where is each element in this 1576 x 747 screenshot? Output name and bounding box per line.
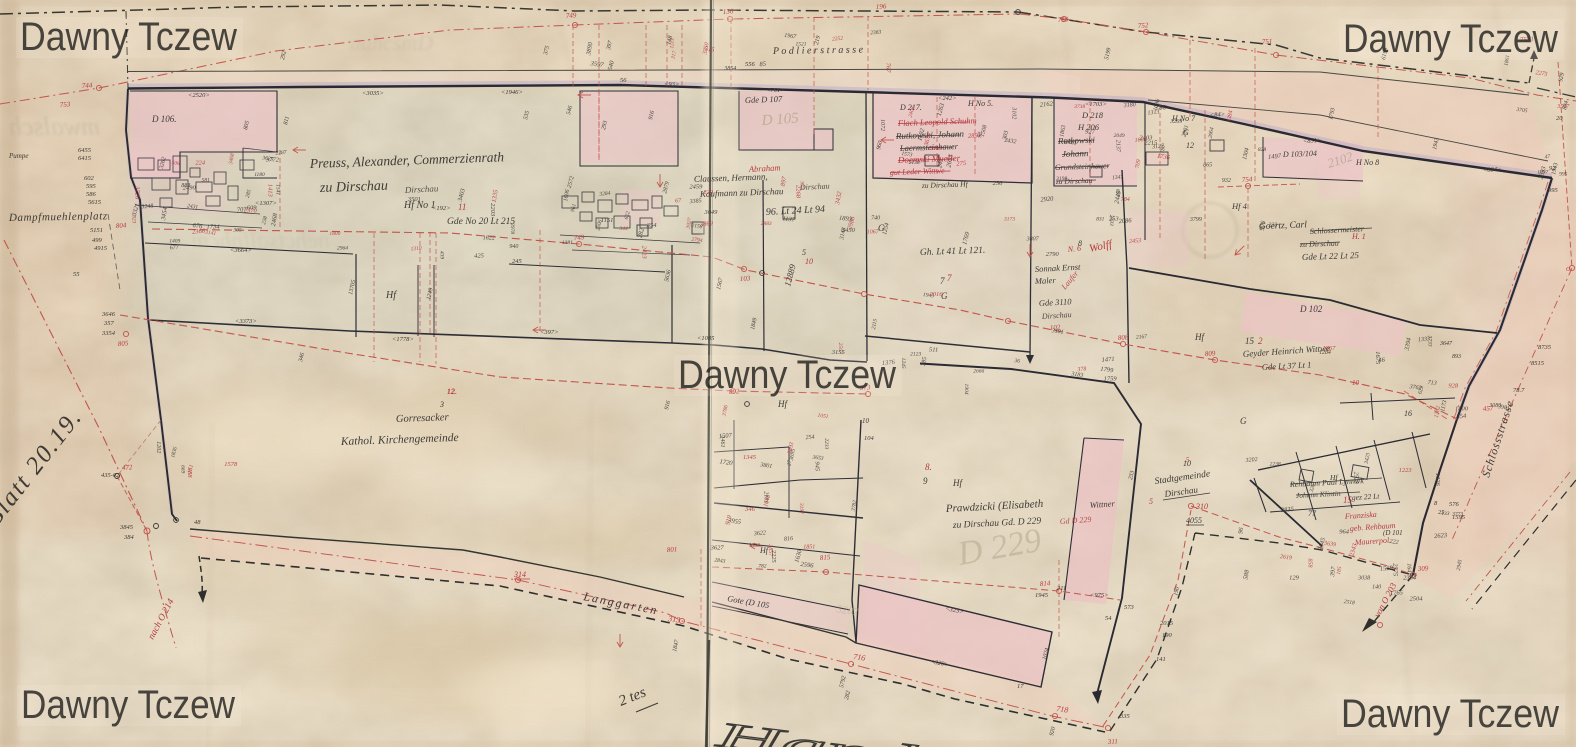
svg-text:749: 749 bbox=[574, 233, 586, 242]
svg-text:133: 133 bbox=[1441, 511, 1450, 517]
svg-text:740: 740 bbox=[871, 215, 880, 222]
svg-text:10: 10 bbox=[1352, 379, 1360, 387]
svg-text:2233: 2233 bbox=[823, 438, 829, 449]
svg-text:784: 784 bbox=[1121, 196, 1130, 203]
svg-text:Hf: Hf bbox=[1194, 332, 1205, 342]
svg-text:211: 211 bbox=[1057, 585, 1066, 592]
svg-text:3647: 3647 bbox=[1439, 340, 1453, 347]
svg-text:Dawny Tczew: Dawny Tczew bbox=[678, 353, 896, 397]
svg-text:1851: 1851 bbox=[803, 545, 815, 551]
svg-text:2287: 2287 bbox=[275, 150, 287, 157]
svg-text:Dawny Tczew: Dawny Tczew bbox=[21, 683, 235, 727]
svg-text:zu Dirschau: zu Dirschau bbox=[319, 179, 389, 196]
svg-text:439: 439 bbox=[439, 251, 446, 260]
svg-text:Hf: Hf bbox=[385, 290, 397, 301]
svg-text:Hf: Hf bbox=[952, 478, 963, 488]
svg-text:1409: 1409 bbox=[169, 238, 180, 245]
svg-text:D 105: D 105 bbox=[760, 110, 800, 129]
svg-text:2162: 2162 bbox=[1040, 101, 1054, 109]
svg-text:<761>: <761> bbox=[766, 87, 785, 94]
svg-text:129: 129 bbox=[1289, 575, 1300, 582]
svg-text:141: 141 bbox=[1156, 656, 1166, 663]
svg-text:9: 9 bbox=[923, 476, 928, 486]
svg-text:1765: 1765 bbox=[1390, 589, 1404, 597]
svg-text:749: 749 bbox=[566, 11, 578, 20]
svg-text:36: 36 bbox=[1013, 358, 1021, 365]
svg-text:435-02: 435-02 bbox=[101, 472, 120, 479]
svg-text:92: 92 bbox=[977, 131, 984, 138]
svg-text:945: 945 bbox=[814, 461, 821, 472]
svg-text:Gde D 107: Gde D 107 bbox=[745, 94, 783, 105]
svg-text:Dawny Tczew: Dawny Tczew bbox=[20, 15, 237, 59]
svg-text:3799: 3799 bbox=[1189, 217, 1202, 223]
svg-text:1521: 1521 bbox=[796, 41, 807, 47]
svg-text:310: 310 bbox=[1195, 502, 1208, 511]
svg-text:7: 7 bbox=[940, 276, 945, 286]
svg-text:224: 224 bbox=[195, 159, 206, 166]
svg-text:2903: 2903 bbox=[930, 146, 942, 152]
svg-text:3646: 3646 bbox=[101, 311, 116, 318]
svg-text:305: 305 bbox=[232, 228, 242, 234]
svg-text:357: 357 bbox=[103, 320, 115, 327]
svg-text:Abraham: Abraham bbox=[748, 162, 781, 174]
svg-text:2883: 2883 bbox=[761, 221, 772, 227]
svg-text:3038: 3038 bbox=[1357, 576, 1370, 582]
svg-text:602: 602 bbox=[84, 175, 95, 182]
svg-text:816: 816 bbox=[784, 536, 793, 543]
svg-text:804: 804 bbox=[116, 221, 128, 230]
svg-text:309: 309 bbox=[1417, 564, 1430, 573]
svg-text:4055: 4055 bbox=[1186, 516, 1202, 525]
svg-text:1347: 1347 bbox=[1112, 173, 1124, 181]
svg-text:103: 103 bbox=[740, 274, 752, 283]
svg-text:254: 254 bbox=[805, 434, 815, 442]
svg-text:5: 5 bbox=[802, 248, 806, 257]
svg-text:56: 56 bbox=[620, 77, 627, 84]
svg-text:1284: 1284 bbox=[1319, 349, 1331, 356]
svg-text:940: 940 bbox=[509, 243, 518, 250]
svg-text:3773: 3773 bbox=[1451, 512, 1463, 518]
svg-text:1333: 1333 bbox=[1418, 336, 1430, 343]
svg-text:1759: 1759 bbox=[1104, 376, 1118, 383]
svg-text:<1778>: <1778> bbox=[392, 336, 414, 343]
svg-text:Maler: Maler bbox=[1034, 275, 1057, 286]
svg-text:104: 104 bbox=[864, 435, 875, 442]
svg-text:196: 196 bbox=[876, 2, 888, 11]
svg-text:3269: 3269 bbox=[1169, 119, 1182, 125]
svg-text:3857: 3857 bbox=[767, 543, 773, 557]
svg-text:3127: 3127 bbox=[1151, 143, 1165, 150]
svg-text:17: 17 bbox=[1017, 683, 1024, 690]
svg-text:Dawny Tczew: Dawny Tczew bbox=[1343, 17, 1558, 61]
svg-text:828: 828 bbox=[1258, 147, 1267, 153]
svg-text:3627: 3627 bbox=[710, 544, 725, 551]
svg-text:5615: 5615 bbox=[88, 199, 102, 206]
svg-text:10: 10 bbox=[805, 257, 813, 266]
svg-text:1413: 1413 bbox=[267, 184, 274, 198]
svg-text:554: 554 bbox=[1456, 413, 1467, 421]
svg-text:751: 751 bbox=[1262, 37, 1273, 46]
svg-text:<884>: <884> bbox=[1483, 166, 1502, 174]
svg-text:3248: 3248 bbox=[140, 202, 154, 210]
svg-text:5: 5 bbox=[1149, 497, 1153, 506]
svg-text:2964: 2964 bbox=[337, 245, 348, 252]
svg-text:(D 101: (D 101 bbox=[1383, 529, 1403, 537]
svg-text:245: 245 bbox=[512, 258, 523, 265]
svg-text:Gorresacker: Gorresacker bbox=[396, 412, 450, 425]
svg-text:1072: 1072 bbox=[879, 119, 885, 131]
svg-text:3198: 3198 bbox=[1055, 176, 1067, 182]
svg-text:1067: 1067 bbox=[867, 230, 880, 236]
svg-text:3622: 3622 bbox=[753, 530, 766, 537]
svg-text:767: 767 bbox=[885, 63, 892, 73]
svg-text:48: 48 bbox=[194, 519, 201, 526]
svg-text:3197: 3197 bbox=[798, 502, 804, 514]
svg-text:2459: 2459 bbox=[689, 184, 703, 191]
svg-text:964: 964 bbox=[1339, 529, 1350, 536]
svg-text:1541: 1541 bbox=[275, 184, 282, 195]
svg-text:256: 256 bbox=[993, 180, 1004, 187]
svg-text:6455: 6455 bbox=[78, 147, 92, 154]
svg-text:<2520>: <2520> bbox=[188, 92, 210, 99]
svg-text:12: 12 bbox=[1186, 141, 1194, 150]
svg-text:1471: 1471 bbox=[1101, 356, 1115, 364]
svg-text:335: 335 bbox=[1119, 713, 1131, 720]
svg-text:1180: 1180 bbox=[254, 172, 265, 178]
svg-text:<3664>: <3664> bbox=[230, 247, 252, 254]
svg-text:2138: 2138 bbox=[909, 160, 920, 166]
svg-text:4915: 4915 bbox=[94, 245, 108, 252]
svg-text:801: 801 bbox=[667, 545, 678, 554]
svg-text:573: 573 bbox=[1124, 604, 1135, 611]
svg-text:229: 229 bbox=[703, 189, 714, 196]
svg-text:11: 11 bbox=[458, 202, 466, 212]
svg-text:2354: 2354 bbox=[1403, 575, 1417, 582]
svg-text:858: 858 bbox=[1307, 559, 1313, 568]
svg-text:3371: 3371 bbox=[668, 36, 674, 48]
svg-text:1904: 1904 bbox=[963, 384, 970, 395]
svg-text:<192>: <192> bbox=[432, 205, 451, 212]
svg-text:1578: 1578 bbox=[224, 461, 238, 468]
svg-text:Gde 3110: Gde 3110 bbox=[1039, 296, 1073, 308]
svg-text:54: 54 bbox=[1105, 615, 1112, 622]
svg-text:595: 595 bbox=[86, 183, 97, 190]
svg-text:2423: 2423 bbox=[640, 246, 647, 260]
svg-text:2383: 2383 bbox=[870, 29, 882, 36]
svg-text:8515: 8515 bbox=[1531, 360, 1545, 367]
svg-text:995: 995 bbox=[1548, 187, 1559, 194]
svg-text:mwalsch: mwalsch bbox=[9, 112, 100, 141]
svg-text:3202: 3202 bbox=[1244, 457, 1257, 464]
svg-text:713: 713 bbox=[1427, 380, 1437, 387]
svg-text:275: 275 bbox=[956, 160, 967, 168]
svg-text:3854: 3854 bbox=[723, 65, 736, 72]
svg-text:506: 506 bbox=[171, 160, 180, 167]
svg-text:Dawny Tczew: Dawny Tczew bbox=[1341, 692, 1559, 736]
svg-text:2203: 2203 bbox=[489, 203, 496, 217]
svg-text:3835: 3835 bbox=[1280, 506, 1295, 514]
svg-text:2252: 2252 bbox=[832, 36, 844, 43]
svg-text:8735: 8735 bbox=[1538, 344, 1552, 351]
svg-text:1675: 1675 bbox=[1374, 351, 1381, 365]
svg-text:314: 314 bbox=[513, 570, 526, 579]
svg-text:576: 576 bbox=[1449, 501, 1460, 508]
svg-text:2167: 2167 bbox=[1136, 334, 1148, 341]
svg-text:750: 750 bbox=[1058, 15, 1070, 24]
svg-text:<851>: <851> bbox=[1303, 137, 1322, 145]
svg-text:511: 511 bbox=[929, 347, 938, 354]
svg-text:55: 55 bbox=[73, 271, 80, 278]
svg-text:2790: 2790 bbox=[1046, 251, 1060, 258]
svg-text:6415: 6415 bbox=[78, 155, 92, 162]
svg-text:1507: 1507 bbox=[719, 432, 733, 440]
svg-text:H No 8: H No 8 bbox=[1355, 158, 1379, 167]
svg-text:927: 927 bbox=[1085, 129, 1096, 136]
svg-text:Gde No 20 Lt 215: Gde No 20 Lt 215 bbox=[447, 217, 515, 227]
svg-text:3501: 3501 bbox=[407, 196, 421, 203]
svg-text:808: 808 bbox=[1118, 333, 1130, 342]
svg-text:253: 253 bbox=[1109, 216, 1120, 223]
svg-text:Dirschau: Dirschau bbox=[404, 183, 439, 195]
svg-text:1381: 1381 bbox=[562, 240, 573, 246]
svg-text:669: 669 bbox=[180, 465, 186, 474]
svg-text:3738: 3738 bbox=[1073, 104, 1085, 110]
svg-text:2268: 2268 bbox=[795, 185, 802, 199]
svg-text:5151: 5151 bbox=[90, 227, 103, 234]
svg-text:2666: 2666 bbox=[973, 368, 984, 374]
svg-text:815: 815 bbox=[820, 553, 832, 562]
svg-text:754: 754 bbox=[1242, 175, 1254, 184]
svg-text:67: 67 bbox=[675, 199, 682, 205]
svg-text:3385: 3385 bbox=[688, 198, 701, 205]
svg-text:995: 995 bbox=[1559, 171, 1568, 177]
svg-text:222: 222 bbox=[1389, 539, 1399, 546]
svg-text:472: 472 bbox=[122, 463, 134, 472]
svg-text:344: 344 bbox=[619, 225, 629, 232]
svg-text:2015: 2015 bbox=[1160, 620, 1174, 627]
svg-text:718: 718 bbox=[1056, 704, 1069, 715]
svg-text:H No 5.: H No 5. bbox=[967, 99, 993, 108]
svg-text:7: 7 bbox=[947, 273, 952, 283]
svg-text:Dampfmuehlenplatz: Dampfmuehlenplatz bbox=[8, 210, 108, 224]
svg-text:<1085: <1085 bbox=[697, 335, 715, 342]
svg-text:384: 384 bbox=[123, 534, 135, 541]
svg-text:<1703>: <1703> bbox=[1085, 101, 1107, 108]
svg-text:2575: 2575 bbox=[1392, 563, 1399, 577]
svg-text:O: O bbox=[1566, 267, 1571, 273]
svg-text:<84>: <84> bbox=[1210, 111, 1226, 119]
svg-text:752: 752 bbox=[1138, 21, 1150, 30]
svg-text:Gde Lt 22 Lt 25: Gde Lt 22 Lt 25 bbox=[1302, 250, 1360, 262]
svg-text:3102: 3102 bbox=[1011, 106, 1017, 119]
svg-text:3807: 3807 bbox=[1026, 237, 1040, 243]
svg-text:P o d l i e r s t r a s s e: P o d l i e r s t r a s s e bbox=[772, 44, 864, 57]
svg-text:556: 556 bbox=[745, 61, 756, 68]
svg-text:223: 223 bbox=[1268, 222, 1277, 228]
svg-text:140: 140 bbox=[1372, 583, 1381, 590]
svg-text:2453: 2453 bbox=[1129, 237, 1142, 245]
svg-text:2238: 2238 bbox=[1270, 462, 1281, 468]
svg-text:16: 16 bbox=[1404, 409, 1412, 418]
svg-text:130: 130 bbox=[723, 7, 735, 16]
svg-text:3354: 3354 bbox=[101, 330, 116, 337]
svg-text:20: 20 bbox=[1556, 115, 1563, 122]
svg-text:3180: 3180 bbox=[1123, 102, 1136, 109]
svg-text:2370: 2370 bbox=[244, 208, 258, 215]
svg-text:677: 677 bbox=[170, 245, 180, 252]
svg-text:77: 77 bbox=[1308, 509, 1317, 518]
svg-text:Hf: Hf bbox=[777, 399, 788, 409]
svg-text:354: 354 bbox=[646, 222, 658, 229]
svg-text:H. 1: H. 1 bbox=[1351, 232, 1366, 241]
svg-text:D 102: D 102 bbox=[1299, 304, 1323, 314]
svg-text:<1307>: <1307> bbox=[255, 200, 277, 207]
svg-text:2623: 2623 bbox=[1434, 532, 1448, 540]
svg-text:D 106.: D 106. bbox=[151, 114, 177, 124]
svg-text:Hf 4: Hf 4 bbox=[1231, 201, 1248, 211]
svg-text:92: 92 bbox=[1549, 165, 1556, 172]
svg-text:2523: 2523 bbox=[1353, 472, 1359, 484]
svg-text:1666: 1666 bbox=[1134, 137, 1146, 144]
svg-text:Wittner: Wittner bbox=[1089, 498, 1115, 510]
svg-text:8: 8 bbox=[1078, 239, 1082, 248]
svg-text:2049: 2049 bbox=[1114, 132, 1125, 139]
svg-text:1800: 1800 bbox=[1455, 406, 1469, 413]
svg-text:313: 313 bbox=[667, 614, 681, 625]
svg-text:586: 586 bbox=[86, 191, 97, 198]
svg-text:932: 932 bbox=[1222, 178, 1231, 184]
svg-text:3726: 3726 bbox=[134, 185, 141, 200]
svg-text:47: 47 bbox=[1544, 153, 1550, 160]
svg-text:G: G bbox=[1240, 416, 1247, 426]
svg-text:<93>: <93> bbox=[664, 81, 679, 88]
svg-text:865: 865 bbox=[1203, 162, 1212, 168]
svg-text:2123: 2123 bbox=[910, 352, 921, 358]
svg-text:311: 311 bbox=[1107, 737, 1119, 746]
svg-text:2978: 2978 bbox=[509, 223, 515, 234]
svg-text:2920: 2920 bbox=[1040, 195, 1054, 203]
svg-text:2: 2 bbox=[1258, 336, 1263, 346]
svg-text:2504: 2504 bbox=[1410, 596, 1424, 603]
svg-text:1026: 1026 bbox=[1434, 473, 1441, 487]
svg-text:12.: 12. bbox=[447, 387, 457, 396]
svg-text:gez 22 Lt: gez 22 Lt bbox=[1352, 492, 1381, 502]
svg-text:744: 744 bbox=[82, 81, 94, 90]
svg-text:488: 488 bbox=[186, 468, 193, 479]
svg-text:2101: 2101 bbox=[762, 491, 768, 503]
svg-text:15: 15 bbox=[1245, 336, 1255, 346]
svg-text:2086: 2086 bbox=[1118, 217, 1132, 225]
svg-text:581: 581 bbox=[202, 178, 211, 184]
svg-text:<242>: <242> bbox=[938, 95, 957, 102]
svg-text:346: 346 bbox=[744, 506, 756, 513]
svg-text:814: 814 bbox=[1040, 579, 1052, 588]
svg-text:2137: 2137 bbox=[1114, 140, 1120, 153]
svg-text:10: 10 bbox=[862, 417, 870, 425]
svg-text:3: 3 bbox=[439, 400, 444, 409]
svg-text:716: 716 bbox=[853, 652, 866, 663]
svg-text:Hf: Hf bbox=[1329, 473, 1338, 482]
svg-text:499: 499 bbox=[92, 237, 103, 244]
svg-text:805: 805 bbox=[118, 339, 130, 348]
svg-text:1945: 1945 bbox=[1035, 592, 1049, 599]
svg-text:831: 831 bbox=[1096, 216, 1105, 222]
svg-text:928: 928 bbox=[1448, 383, 1459, 390]
svg-text:2016: 2016 bbox=[930, 291, 944, 298]
svg-text:8.: 8. bbox=[925, 462, 932, 472]
svg-text:809: 809 bbox=[1205, 349, 1217, 358]
svg-text:1202: 1202 bbox=[155, 441, 161, 453]
svg-text:3173: 3173 bbox=[1003, 217, 1015, 223]
svg-text:1622: 1622 bbox=[483, 235, 495, 241]
svg-text:<975>: <975> bbox=[1090, 592, 1109, 599]
svg-text:893: 893 bbox=[1452, 354, 1461, 360]
svg-text:888: 888 bbox=[181, 183, 190, 189]
svg-text:3597: 3597 bbox=[1556, 104, 1570, 110]
svg-text:<3373>: <3373> bbox=[235, 318, 257, 325]
svg-text:782: 782 bbox=[758, 564, 767, 570]
svg-text:Pumpe: Pumpe bbox=[8, 152, 28, 160]
svg-text:<1946>: <1946> bbox=[501, 89, 523, 96]
svg-text:1223: 1223 bbox=[1399, 467, 1413, 474]
svg-text:3845: 3845 bbox=[119, 524, 134, 531]
svg-text:1497: 1497 bbox=[1268, 153, 1282, 161]
svg-text:zu Dirschau Hf: zu Dirschau Hf bbox=[921, 179, 969, 190]
svg-text:1345: 1345 bbox=[743, 454, 757, 461]
svg-text:1310: 1310 bbox=[410, 246, 422, 253]
svg-text:190: 190 bbox=[1162, 632, 1173, 639]
svg-text:425: 425 bbox=[474, 253, 485, 260]
svg-text:D 103/104: D 103/104 bbox=[1282, 149, 1317, 159]
svg-text:753: 753 bbox=[60, 100, 72, 109]
svg-text:<3035>: <3035> bbox=[362, 90, 384, 97]
svg-text:1800: 1800 bbox=[329, 231, 340, 237]
svg-text:3049: 3049 bbox=[703, 209, 718, 216]
svg-text:3284: 3284 bbox=[598, 190, 611, 198]
svg-text:78.7: 78.7 bbox=[1513, 387, 1525, 394]
svg-text:D 218: D 218 bbox=[1081, 110, 1104, 120]
